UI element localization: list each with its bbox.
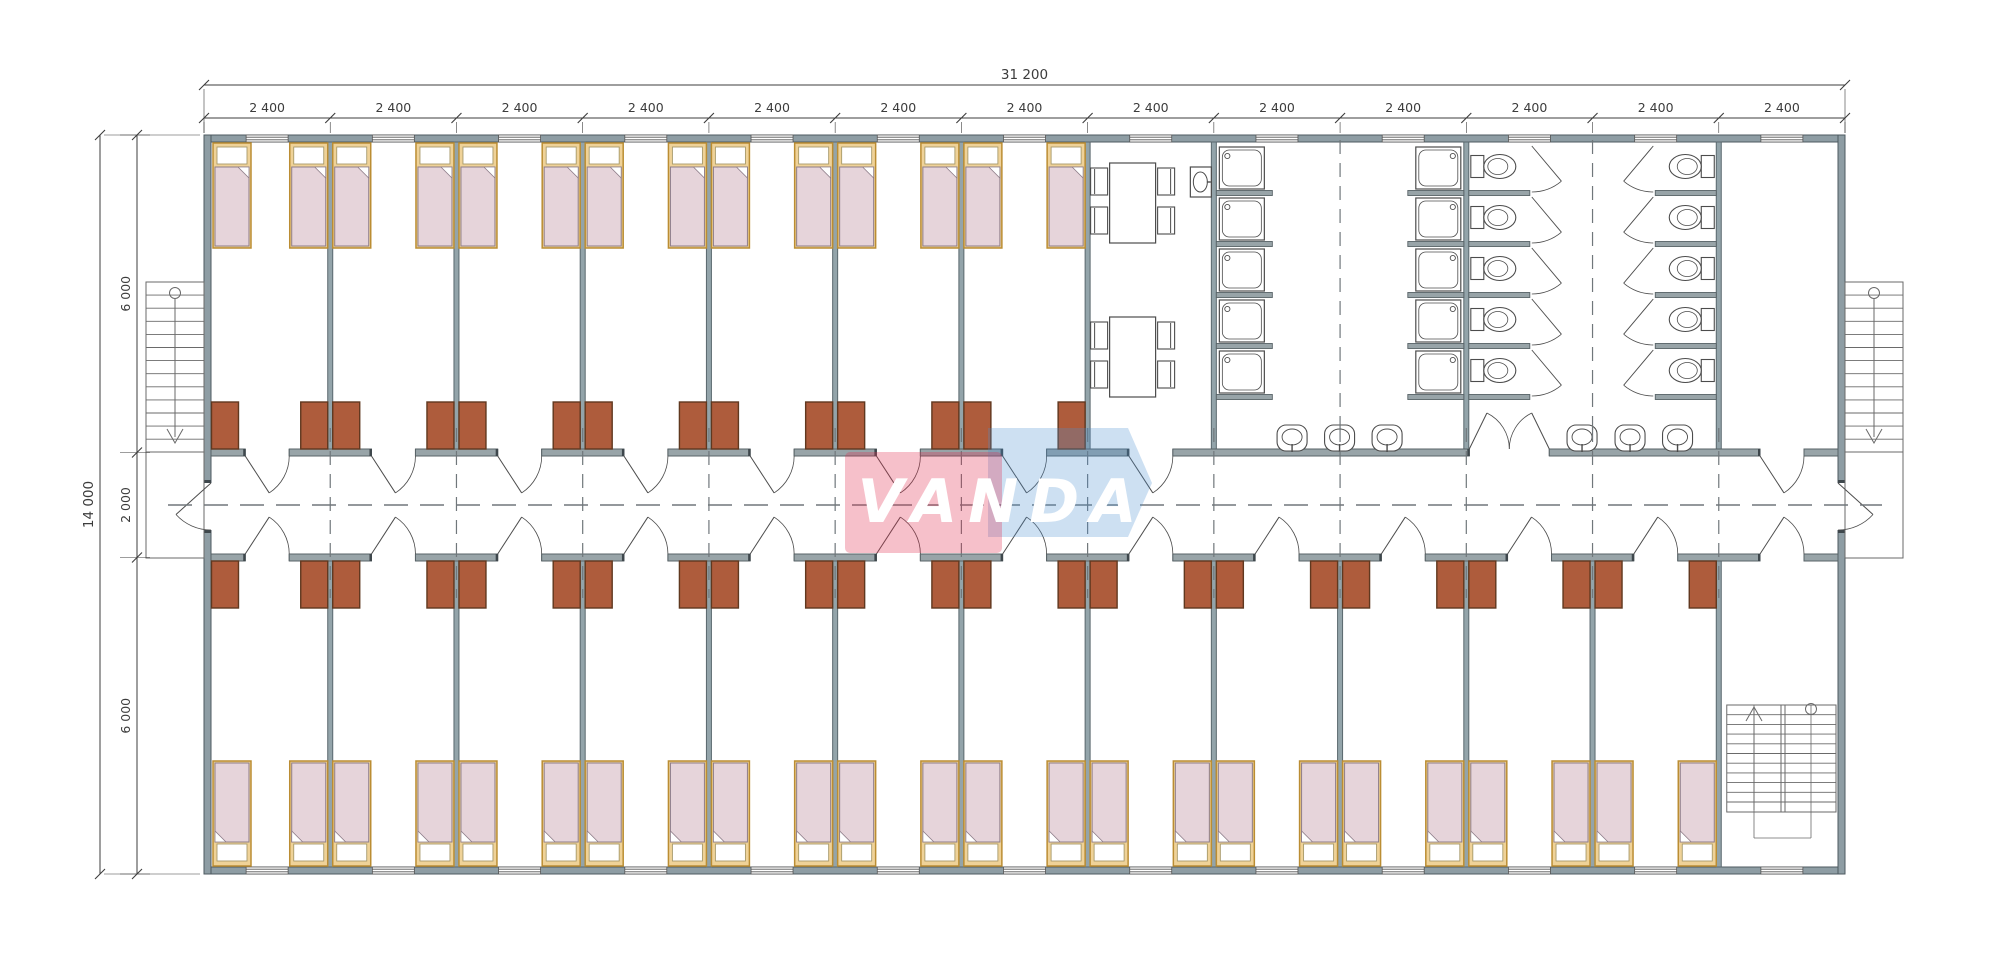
jamb-cap [1127,554,1130,561]
dining-chair [1158,361,1175,388]
toilet-tank [1471,156,1484,178]
bed-blanket [587,167,621,246]
dimension-corridor-width: 2 000 [118,487,133,523]
bed-blanket [1428,763,1462,842]
dimension-total-height: 14 000 [81,481,97,528]
dimension-total-width: 31 200 [1001,67,1048,83]
bed-pillow [968,147,998,164]
bed-pillow [589,147,619,164]
desk [1184,561,1211,608]
bed [1343,761,1381,866]
bed [416,761,454,866]
bed-blanket [966,167,1000,246]
desk [212,402,239,449]
shower-divider-wall [1216,242,1272,247]
bed [459,143,497,248]
bed-blanket [966,763,1000,842]
bed-blanket [1597,763,1631,842]
bed-blanket [587,763,621,842]
bed [668,761,706,866]
desk [427,402,454,449]
bed-pillow [1556,844,1586,861]
dimension-bay-width: 2 400 [880,100,916,115]
desk [1090,561,1117,608]
bed [1300,761,1338,866]
shower-divider-wall [1216,293,1272,298]
jamb-cap [1758,554,1761,561]
desk [459,402,486,449]
bed-pillow [337,147,367,164]
desk [1311,561,1338,608]
toilet-bowl [1669,155,1701,179]
dining-chair [1091,168,1108,195]
bed-pillow [715,147,745,164]
window [1635,135,1677,142]
bed-pillow [294,844,324,861]
desk [932,402,959,449]
jamb-cap [204,530,211,533]
stall-partition [1655,344,1716,349]
bed-blanket [461,167,495,246]
window [751,867,793,874]
bed-blanket [1175,763,1209,842]
beds-bottom [213,761,1716,866]
desk [711,561,738,608]
bed [585,143,623,248]
bed-pillow [463,147,493,164]
desk [212,561,239,608]
jamb-cap [496,554,499,561]
bed [1047,761,1085,866]
dimension-bay-width: 2 400 [375,100,411,115]
dimension-lower-depth: 6 000 [118,698,133,734]
bed-blanket [418,763,452,842]
dimension-bay-width: 2 400 [1764,100,1800,115]
desk [679,402,706,449]
toilet-tank [1471,207,1484,229]
toilet-bowl [1484,206,1516,230]
bed-pillow [420,844,450,861]
bed-blanket [1345,763,1379,842]
window [1130,135,1172,142]
logo-text: VANDA [858,467,1143,537]
bed-pillow [463,844,493,861]
bed-blanket [1092,763,1126,842]
bed [290,143,328,248]
bed-blanket [670,763,704,842]
bed-pillow [1682,844,1712,861]
bed-blanket [923,167,957,246]
bed [542,761,580,866]
bed-pillow [672,844,702,861]
wall-door-gap [204,483,212,530]
corridor-wall-segment [1173,449,1469,456]
bed-blanket [713,763,747,842]
window [1635,867,1677,874]
window [246,867,288,874]
window [1130,867,1172,874]
desk [964,402,991,449]
bed [1678,761,1716,866]
jamb-cap [622,554,625,561]
desk [1343,561,1370,608]
bed [1216,761,1254,866]
bed [795,761,833,866]
shower-divider-wall [1408,395,1464,400]
bed [711,143,749,248]
bed [921,143,959,248]
bed [921,761,959,866]
desk [1595,561,1622,608]
jamb-cap [1467,449,1470,456]
desk [1689,561,1716,608]
bed-blanket [1554,763,1588,842]
bed-pillow [842,844,872,861]
window [1004,867,1046,874]
stall-partition [1469,191,1530,196]
corridor-wall-segment [1804,449,1838,456]
toilet-bowl [1484,155,1516,179]
window [1256,135,1298,142]
bed-pillow [799,147,829,164]
bed-pillow [546,147,576,164]
bed-blanket [840,763,874,842]
bed [542,143,580,248]
bed-pillow [337,844,367,861]
bed-pillow [1220,844,1250,861]
window [625,135,667,142]
bed-blanket [292,763,326,842]
window [751,135,793,142]
stall-partition [1655,242,1716,247]
toilet-tank [1471,258,1484,280]
toilet-bowl [1669,257,1701,281]
bed [1595,761,1633,866]
jamb-cap [1632,554,1635,561]
window [499,867,541,874]
stall-partition [1469,344,1530,349]
bed [213,761,251,866]
bed [1173,761,1211,866]
bed-blanket [713,167,747,246]
bed-blanket [544,763,578,842]
window [246,135,288,142]
toilet-tank [1701,360,1714,382]
dining-chair [1158,322,1175,349]
desk [838,561,865,608]
jamb-cap [243,449,246,456]
dining-chair [1091,361,1108,388]
bed [838,761,876,866]
bed-pillow [1094,844,1124,861]
bed-pillow [672,147,702,164]
bed-blanket [1302,763,1336,842]
bed [668,143,706,248]
bed-pillow [420,147,450,164]
window [1761,867,1803,874]
bed [333,143,371,248]
stall-partition [1469,242,1530,247]
jamb-cap [1379,554,1382,561]
bed-pillow [589,844,619,861]
jamb-cap [1001,554,1004,561]
dining-table [1110,317,1156,397]
dimension-bay-width: 2 400 [249,100,285,115]
window [372,867,414,874]
bed-pillow [1347,844,1377,861]
jamb-cap [369,449,372,456]
toilet-tank [1701,309,1714,331]
desk [301,561,328,608]
stall-partition [1469,395,1530,400]
dimension-bay-width: 2 400 [1259,100,1295,115]
stall-partition [1469,293,1530,298]
toilet-tank [1471,360,1484,382]
bed-blanket [1680,763,1714,842]
desk [553,561,580,608]
bed [333,761,371,866]
dimension-bay-width: 2 400 [1638,100,1674,115]
bed [1469,761,1507,866]
bed-blanket [1218,763,1252,842]
jamb-cap [748,449,751,456]
window [1256,867,1298,874]
shower-divider-wall [1408,191,1464,196]
bed [964,761,1002,866]
bed [795,143,833,248]
bed-pillow [925,844,955,861]
dimension-bay-width: 2 400 [1007,100,1043,115]
bed-blanket [1049,763,1083,842]
jamb-cap [1838,480,1845,483]
desk [1563,561,1590,608]
desk [585,561,612,608]
bed-pillow [1177,844,1207,861]
window [1004,135,1046,142]
bed [711,761,749,866]
dimension-upper-depth: 6 000 [118,276,133,312]
toilet-tank [1701,207,1714,229]
bed [213,143,251,248]
toilet-bowl [1484,257,1516,281]
desk [301,402,328,449]
shower-divider-wall [1216,395,1272,400]
bed-blanket [418,167,452,246]
bed [585,761,623,866]
jamb-cap [874,554,877,561]
shower-divider-wall [1216,191,1272,196]
jamb-cap [496,449,499,456]
desk [553,402,580,449]
stall-partition [1655,395,1716,400]
stall-partition [1655,191,1716,196]
desk [1216,561,1243,608]
desk [1058,561,1085,608]
jamb-cap [622,449,625,456]
desk [1437,561,1464,608]
corridor-wall-segment [211,554,245,561]
bed-pillow [842,147,872,164]
desk [679,561,706,608]
desk [932,561,959,608]
corridor-wall-segment [211,449,245,456]
desk [1469,561,1496,608]
bed-blanket [797,763,831,842]
bed [1090,761,1128,866]
bed-blanket [1049,167,1083,246]
jamb-cap [369,554,372,561]
window [372,135,414,142]
window [1508,867,1550,874]
dimension-bay-width: 2 400 [502,100,538,115]
desk [333,402,360,449]
bed-blanket [292,167,326,246]
bed [290,761,328,866]
bed-pillow [799,844,829,861]
corridor-wall-segment [1804,554,1838,561]
dimension-bay-width: 2 400 [1385,100,1421,115]
bed-blanket [461,763,495,842]
dimension-bay-width: 2 400 [1512,100,1548,115]
bed-pillow [1051,147,1081,164]
toilet-tank [1701,156,1714,178]
jamb-cap [204,480,211,483]
partition-wall-top [1211,142,1216,449]
basin-bowl [1193,172,1207,192]
window [877,135,919,142]
floor-plan-page: 31 2002 4002 4002 4002 4002 4002 4002 40… [0,0,2000,977]
partition-wall-top [1464,142,1469,449]
shower-divider-wall [1408,293,1464,298]
bed-pillow [1599,844,1629,861]
jamb-cap [1758,449,1761,456]
desk [964,561,991,608]
bed-pillow [925,147,955,164]
toilet-bowl [1669,359,1701,383]
wall-door-gap [1838,483,1846,530]
dining-chair [1158,168,1175,195]
toilet-bowl [1484,359,1516,383]
desk [585,402,612,449]
dimension-bay-width: 2 400 [754,100,790,115]
jamb-cap [1506,554,1509,561]
bed-pillow [1051,844,1081,861]
window [1382,135,1424,142]
bed-pillow [217,147,247,164]
dining-chair [1158,207,1175,234]
bed [459,761,497,866]
toilet-bowl [1669,206,1701,230]
desk [459,561,486,608]
window [625,867,667,874]
dining-table [1110,163,1156,243]
bed-pillow [1430,844,1460,861]
bed-blanket [797,167,831,246]
bed-blanket [335,763,369,842]
bed-pillow [294,147,324,164]
jamb-cap [1253,554,1256,561]
bed-blanket [1471,763,1505,842]
window [1382,867,1424,874]
dormitory-floor-plan: 31 2002 4002 4002 4002 4002 4002 4002 40… [0,0,2000,977]
bed-pillow [715,844,745,861]
shower-divider-wall [1216,344,1272,349]
stall-partition [1655,293,1716,298]
shower-divider-wall [1408,242,1464,247]
bed [964,143,1002,248]
bed-blanket [215,167,249,246]
bed-pillow [968,844,998,861]
desk [806,561,833,608]
window [499,135,541,142]
desk [427,561,454,608]
bed [838,143,876,248]
partition-wall-top [1716,142,1721,449]
bed [1426,761,1464,866]
window [877,867,919,874]
bed-blanket [840,167,874,246]
dimension-bay-width: 2 400 [628,100,664,115]
desk [333,561,360,608]
dimension-bay-width: 2 400 [1133,100,1169,115]
bed-pillow [546,844,576,861]
bed-blanket [335,167,369,246]
bed-blanket [544,167,578,246]
bed-blanket [670,167,704,246]
bed [1552,761,1590,866]
bed-pillow [217,844,247,861]
dining-chair [1091,322,1108,349]
desk [838,402,865,449]
toilet-bowl [1484,308,1516,332]
jamb-cap [243,554,246,561]
dining-chair [1091,207,1108,234]
window [1508,135,1550,142]
bed-pillow [1473,844,1503,861]
window [1761,135,1803,142]
jamb-cap [748,554,751,561]
bed [416,143,454,248]
bed [1047,143,1085,248]
bed-blanket [215,763,249,842]
toilet-tank [1701,258,1714,280]
shower-divider-wall [1408,344,1464,349]
toilet-tank [1471,309,1484,331]
bed-pillow [1304,844,1334,861]
toilet-bowl [1669,308,1701,332]
desk [806,402,833,449]
jamb-cap [1838,530,1845,533]
desk [711,402,738,449]
bed-blanket [923,763,957,842]
